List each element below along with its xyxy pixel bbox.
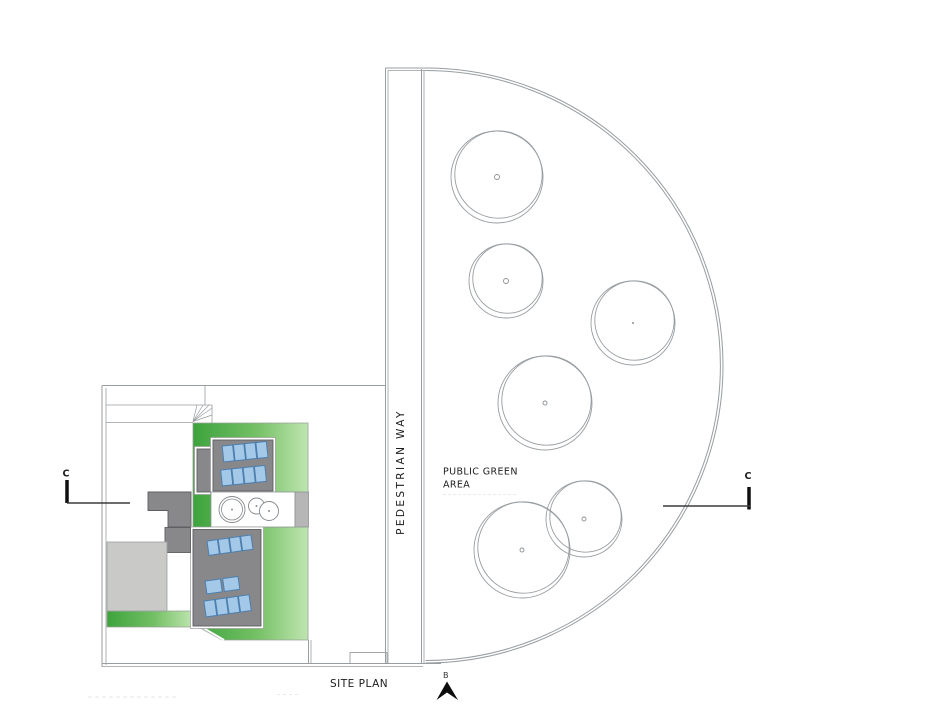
tree-canopy: [469, 244, 543, 318]
stair-line: [193, 405, 203, 422]
tree-center: [543, 401, 547, 405]
section-marker-b: B: [437, 671, 459, 700]
tree-canopy-inner: [595, 281, 674, 360]
driveway: [107, 542, 167, 611]
public-green-label-line1: PUBLIC GREEN: [443, 467, 518, 478]
solar-panel: [238, 595, 251, 612]
north-arrow-icon: [437, 682, 459, 701]
solar-panel: [243, 467, 255, 484]
tree-canopy-inner: [550, 481, 621, 552]
section-label-c-right: C: [745, 471, 752, 482]
solar-panel: [218, 538, 230, 554]
pedestrian-way: [386, 68, 428, 664]
solar-panel: [222, 445, 234, 462]
tree-canopy: [498, 356, 592, 450]
section-marker-c-left: C: [63, 469, 131, 504]
tree-canopy: [546, 481, 622, 557]
stairs: [193, 405, 212, 422]
solar-panel: [241, 535, 253, 551]
solar-panel: [204, 600, 217, 617]
solar-panel: [229, 536, 241, 552]
trees-layer: [451, 131, 675, 598]
tree-center: [632, 322, 634, 324]
site-plan-canvas: C C B PUBLIC GREEN AREA PEDESTRIAN WAY S…: [0, 0, 950, 721]
pedestrian-way-label: PEDESTRIAN WAY: [395, 409, 407, 535]
solar-panel: [245, 443, 257, 460]
courtyard-tree-center: [256, 505, 258, 507]
solar-panel: [215, 598, 228, 615]
solar-panel: [227, 596, 240, 613]
tree-canopy: [474, 502, 570, 598]
entrance-canopy: [148, 492, 191, 527]
tree-center: [520, 548, 524, 552]
section-label-c-left: C: [63, 469, 70, 480]
site-plan-drawing: C C B PUBLIC GREEN AREA PEDESTRIAN WAY S…: [0, 0, 950, 721]
terrace-block: [295, 492, 309, 527]
tree-canopy: [451, 131, 543, 223]
courtyard-tree-center: [268, 510, 270, 512]
section-label-b: B: [443, 671, 449, 680]
tree-center: [504, 279, 509, 284]
tree-canopy-inner: [502, 356, 591, 445]
tree-center: [495, 175, 500, 180]
solar-panel: [232, 468, 244, 485]
public-green-label-line2: AREA: [443, 480, 470, 491]
solar-panel: [254, 465, 266, 482]
solar-panel: [223, 576, 240, 591]
solar-panel: [207, 540, 219, 556]
garden-green-strip: [107, 611, 193, 627]
drawing-title: SITE PLAN: [330, 678, 388, 690]
solar-panel: [221, 469, 233, 486]
connector-roof: [165, 528, 191, 553]
courtyard-tree-center: [231, 509, 233, 511]
tree-center: [582, 517, 586, 521]
solar-panel: [256, 441, 268, 458]
entry-step: [350, 653, 387, 664]
solar-panel: [233, 444, 245, 461]
section-marker-c-right: C: [663, 471, 752, 510]
solar-panel: [205, 579, 222, 594]
